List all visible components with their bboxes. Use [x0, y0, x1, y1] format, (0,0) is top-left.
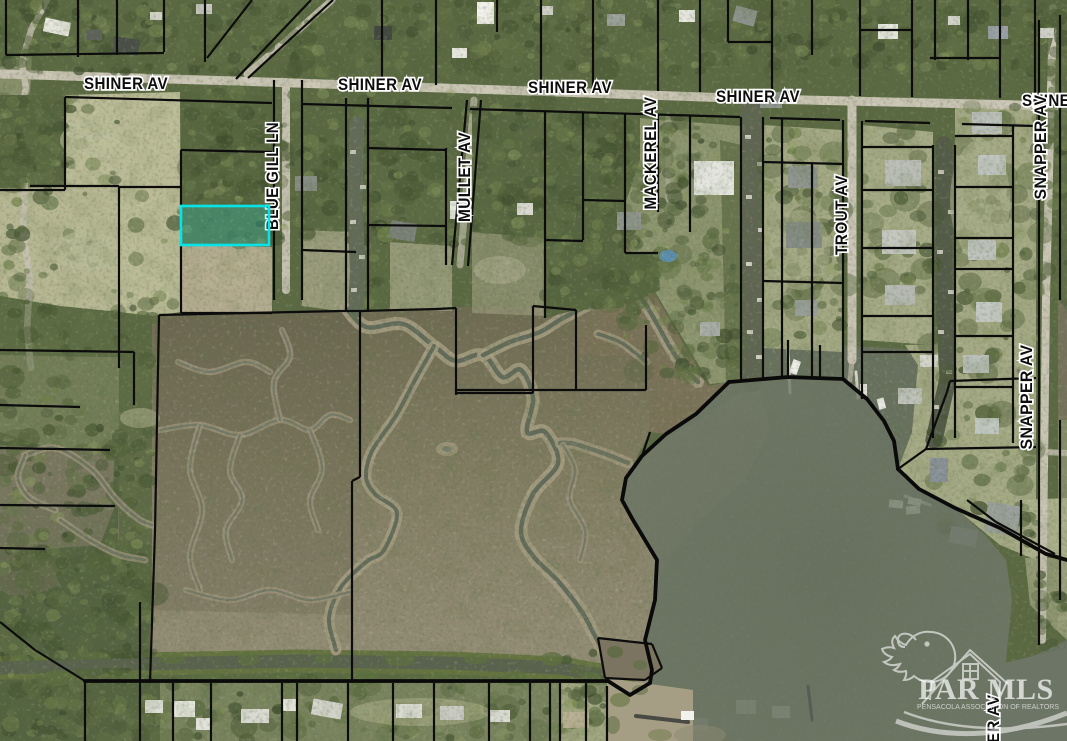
svg-text:TROUT AV: TROUT AV [833, 175, 851, 255]
svg-text:SHINER AV: SHINER AV [338, 75, 422, 94]
svg-text:MACKEREL AV: MACKEREL AV [642, 97, 660, 210]
svg-text:SHINER AV: SHINER AV [528, 78, 612, 97]
svg-text:SHINER AV: SHINER AV [716, 87, 800, 106]
svg-text:MULLET AV: MULLET AV [456, 132, 474, 222]
svg-text:PAR MLS: PAR MLS [918, 673, 1053, 706]
svg-text:SNAPPER AV: SNAPPER AV [1032, 95, 1050, 200]
svg-text:SNAPPER AV: SNAPPER AV [1018, 345, 1036, 450]
svg-text:PENSACOLA ASSOCIATION OF REALT: PENSACOLA ASSOCIATION OF REALTORS [917, 704, 1059, 711]
svg-text:SHINER AV: SHINER AV [84, 74, 168, 93]
